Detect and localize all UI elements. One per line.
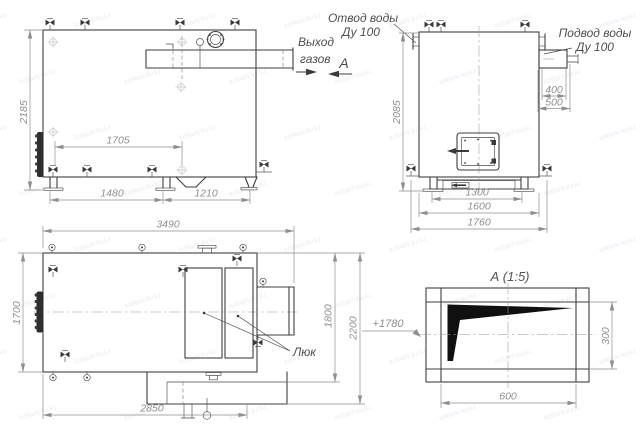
- watermark-text: kotlant-kv.kz: [494, 236, 533, 254]
- top-view: Люк +1780 3490 1700 2850 1800 2200: [11, 219, 421, 420]
- watermark-text: kotlant-kv.kz: [0, 124, 8, 142]
- dim-pipe-offset: 400: [545, 84, 563, 96]
- watermark-layer: kotlant-kv.kzkotlant-kv.kzkotlant-kv.kzk…: [0, 12, 644, 422]
- watermark-text: kotlant-kv.kz: [284, 236, 323, 254]
- dim-detail-width: 600: [499, 391, 517, 403]
- watermark-text: kotlant-kv.kz: [439, 68, 478, 86]
- watermark-text: kotlant-kv.kz: [599, 124, 638, 142]
- dim-depth-inner: 1800: [323, 304, 335, 328]
- watermark-text: kotlant-kv.kz: [284, 12, 323, 30]
- dim-base-inner: 1300: [465, 187, 489, 199]
- door-handle-icon: [447, 148, 456, 154]
- dim-body-length: 2850: [139, 403, 164, 415]
- watermark-text: kotlant-kv.kz: [229, 292, 268, 310]
- weld-seam-shape: [448, 305, 574, 362]
- watermark-text: kotlant-kv.kz: [334, 292, 373, 310]
- front-valves: [46, 19, 273, 177]
- watermark-text: kotlant-kv.kz: [229, 68, 268, 86]
- water-inlet-dn: Ду 100: [574, 40, 614, 54]
- watermark-text: kotlant-kv.kz: [19, 404, 58, 422]
- watermark-text: kotlant-kv.kz: [19, 180, 58, 198]
- water-outlet-dn: Ду 100: [340, 25, 380, 39]
- top-view-body: [33, 244, 298, 419]
- dim-overall-length: 3490: [156, 219, 180, 231]
- watermark-text: kotlant-kv.kz: [179, 236, 218, 254]
- dim-width: 1700: [11, 301, 23, 325]
- level-mark: +1780: [373, 318, 405, 330]
- door-hinge-icon: [492, 140, 497, 145]
- dim-overall-width: 1760: [467, 217, 491, 229]
- gas-outlet-annotation: Выход газов: [296, 35, 334, 75]
- watermark-text: kotlant-kv.kz: [124, 68, 163, 86]
- watermark-text: kotlant-kv.kz: [334, 180, 373, 198]
- section-view-arrow: А: [328, 55, 352, 77]
- water-inlet-text: Подвод воды: [559, 26, 632, 40]
- gas-duct: [146, 48, 293, 70]
- dim-front-base-right: 1210: [194, 188, 218, 200]
- watermark-text: kotlant-kv.kz: [599, 348, 638, 366]
- watermark-text: kotlant-kv.kz: [74, 236, 113, 254]
- watermark-text: kotlant-kv.kz: [284, 124, 323, 142]
- dim-front-inner-width: 1705: [106, 135, 130, 147]
- boiler-door: [447, 133, 499, 170]
- dim-front-base-left: 1480: [100, 188, 124, 200]
- watermark-text: kotlant-kv.kz: [544, 180, 583, 198]
- section-arrow-icon: [328, 71, 339, 77]
- level-mark-annotation: +1780: [362, 318, 421, 337]
- watermark-text: kotlant-kv.kz: [334, 404, 373, 422]
- watermark-text: kotlant-kv.kz: [0, 12, 8, 30]
- gas-outlet-label-line1: Выход: [298, 35, 334, 49]
- watermark-text: kotlant-kv.kz: [179, 348, 218, 366]
- dim-side-height: 2085: [391, 100, 403, 125]
- watermark-text: kotlant-kv.kz: [74, 348, 113, 366]
- hatch-annotation: Люк: [204, 313, 317, 359]
- watermark-text: kotlant-kv.kz: [124, 292, 163, 310]
- dim-detail-height: 300: [600, 327, 612, 345]
- watermark-text: kotlant-kv.kz: [494, 348, 533, 366]
- door-hinge-icon: [492, 159, 497, 164]
- watermark-text: kotlant-kv.kz: [389, 124, 428, 142]
- watermark-text: kotlant-kv.kz: [389, 236, 428, 254]
- watermark-text: kotlant-kv.kz: [229, 404, 268, 422]
- drain-fitting-icon: [197, 39, 204, 46]
- watermark-text: kotlant-kv.kz: [544, 292, 583, 310]
- hatch-label: Люк: [292, 345, 317, 359]
- watermark-text: kotlant-kv.kz: [124, 180, 163, 198]
- watermark-text: kotlant-kv.kz: [0, 236, 8, 254]
- boiler-technical-drawing: kotlant-kv.kzkotlant-kv.kzkotlant-kv.kzk…: [0, 0, 644, 430]
- bottom-housing: [147, 372, 287, 419]
- hatch-right: [225, 268, 253, 358]
- watermark-text: kotlant-kv.kz: [74, 12, 113, 30]
- watermark-text: kotlant-kv.kz: [229, 180, 268, 198]
- watermark-text: kotlant-kv.kz: [0, 348, 8, 366]
- dim-depth-overall: 2200: [348, 316, 360, 341]
- flanged-port-icon: [207, 32, 225, 48]
- watermark-text: kotlant-kv.kz: [179, 124, 218, 142]
- watermark-text: kotlant-kv.kz: [389, 348, 428, 366]
- level-arrow-icon: [413, 329, 422, 337]
- side-view: А Отвод воды Ду 100 Подвод воды Ду 100 2…: [328, 11, 632, 233]
- watermark-text: kotlant-kv.kz: [544, 404, 583, 422]
- gas-outlet-label-line2: газов: [300, 52, 331, 66]
- dim-pipe-total: 500: [545, 97, 563, 109]
- watermark-text: kotlant-kv.kz: [439, 404, 478, 422]
- front-view-dimensions: 2185 1705 1480 1210: [18, 30, 250, 204]
- dim-front-height: 2185: [18, 100, 30, 125]
- gas-flow-arrow-icon: [306, 69, 317, 75]
- detail-view-a: А (1:5) 300 600: [420, 269, 617, 408]
- left-flange: [35, 132, 44, 177]
- watermark-text: kotlant-kv.kz: [599, 236, 638, 254]
- front-view: Выход газов 2185 1705 1480 1210: [18, 19, 334, 204]
- dim-body-width: 1600: [467, 201, 491, 213]
- section-letter: А: [338, 55, 348, 71]
- front-view-body: [35, 19, 293, 191]
- watermark-text: kotlant-kv.kz: [19, 68, 58, 86]
- water-outlet-text: Отвод воды: [328, 11, 398, 25]
- detail-title: А (1:5): [489, 269, 529, 284]
